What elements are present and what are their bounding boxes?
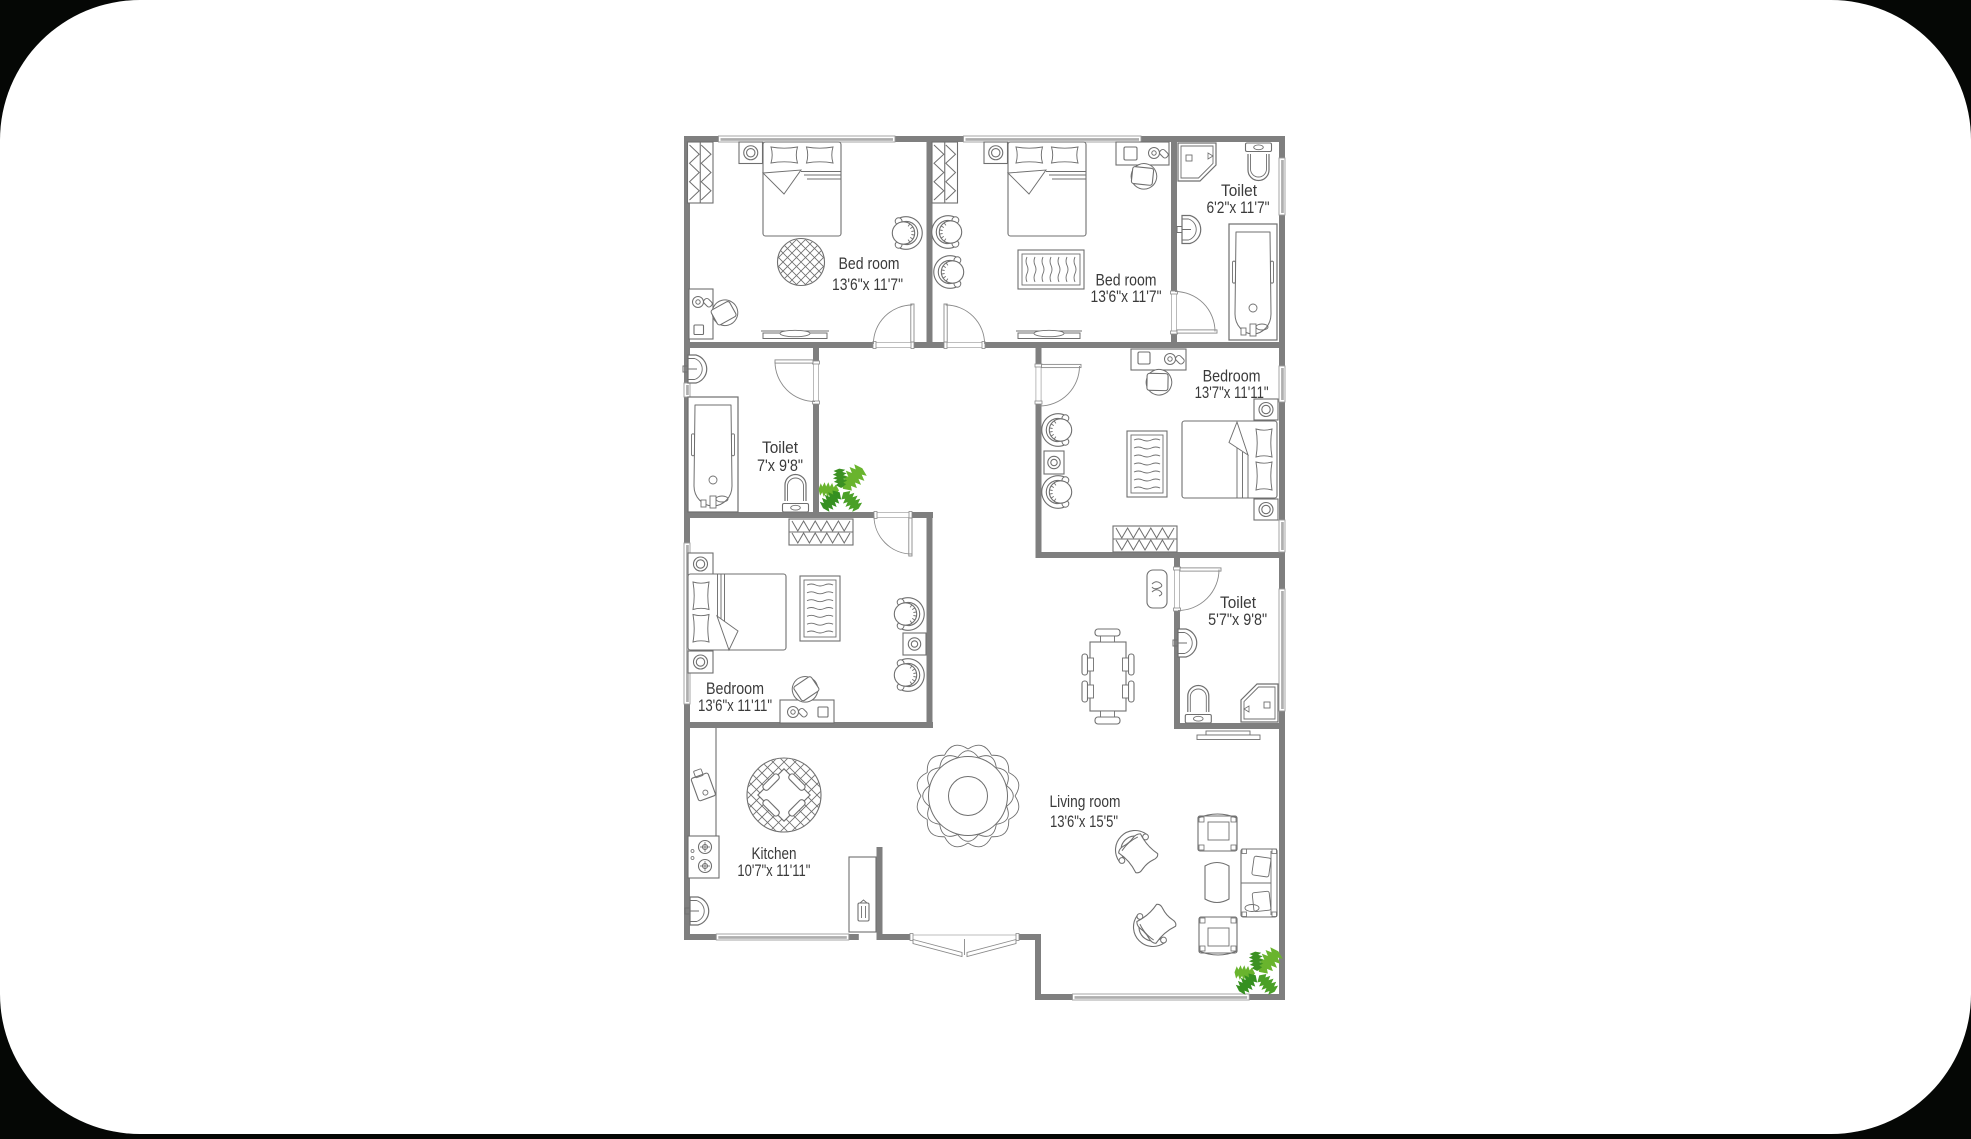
svg-text:6'2"x 11'7": 6'2"x 11'7"	[1207, 198, 1270, 217]
svg-text:13'6"x 11'7": 13'6"x 11'7"	[1091, 287, 1162, 306]
svg-text:13'6"x 15'5": 13'6"x 15'5"	[1050, 812, 1118, 831]
svg-text:Bed room: Bed room	[839, 254, 900, 273]
svg-text:7'x 9'8": 7'x 9'8"	[757, 456, 803, 475]
svg-text:10'7"x 11'11": 10'7"x 11'11"	[737, 861, 810, 880]
svg-text:13'7"x 11'11": 13'7"x 11'11"	[1195, 383, 1269, 402]
svg-text:Living room: Living room	[1050, 792, 1121, 811]
svg-text:13'6"x 11'7": 13'6"x 11'7"	[832, 275, 903, 294]
svg-text:5'7"x 9'8": 5'7"x 9'8"	[1208, 610, 1267, 629]
svg-text:Toilet: Toilet	[762, 438, 798, 457]
svg-text:13'6"x 11'11": 13'6"x 11'11"	[698, 696, 772, 715]
